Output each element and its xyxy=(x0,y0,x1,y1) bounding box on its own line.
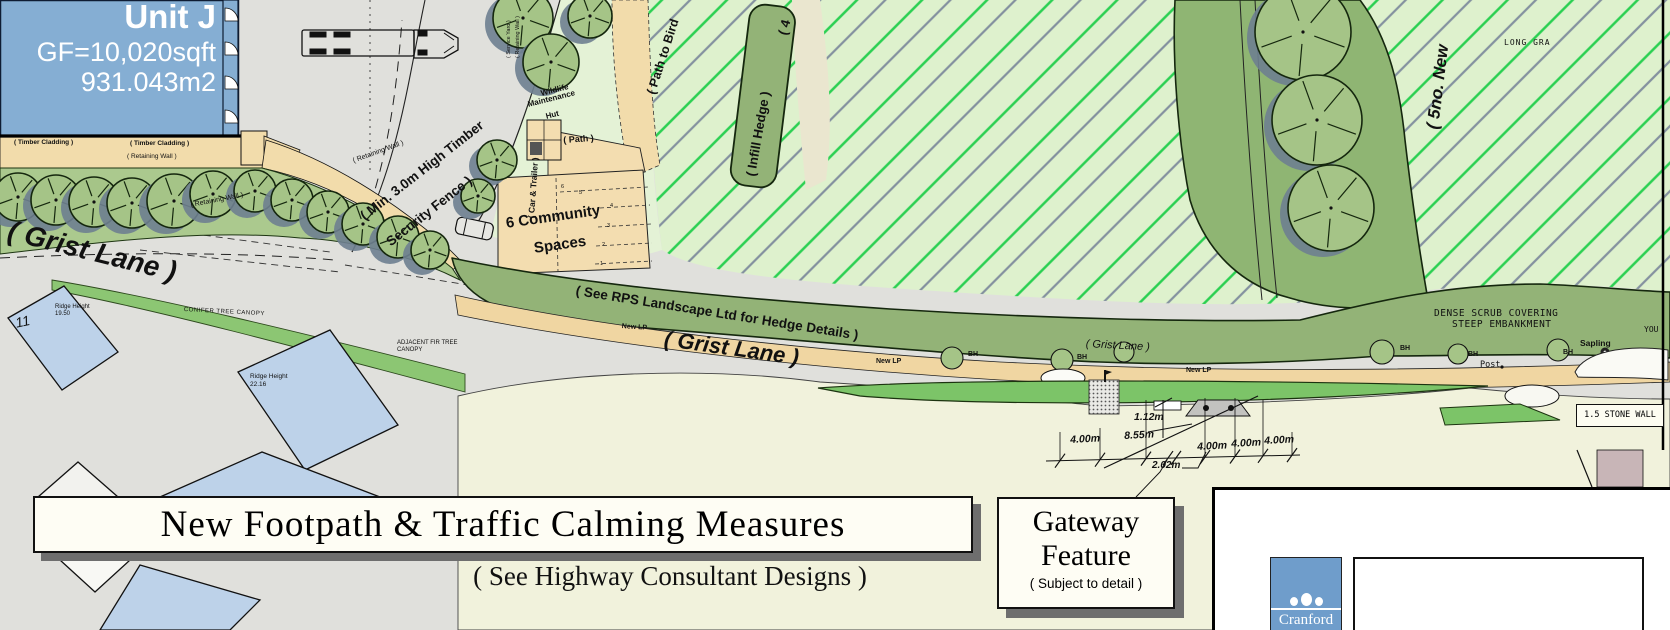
young-fragment-label: YOU xyxy=(1644,326,1658,334)
dimension-label: 4.00m xyxy=(1070,433,1100,446)
dimension-label: 8.55m xyxy=(1124,429,1154,442)
bh-marker: BH xyxy=(1563,349,1573,356)
adjacent-fir-label: ADJACENT FIR TREE xyxy=(397,340,457,346)
ridge-height-value: 22.16 xyxy=(250,382,266,389)
gateway-feature-area xyxy=(1089,380,1119,414)
sapling-label: Sapling xyxy=(1580,339,1611,348)
gateway-feature-title: Feature xyxy=(999,539,1173,573)
bay-number: 5 xyxy=(579,191,582,197)
drawing-info-box xyxy=(1353,557,1644,630)
gateway-feature-note: ( Subject to detail ) xyxy=(999,576,1173,591)
timber-cladding-label: ( Timber Cladding ) xyxy=(14,140,73,147)
title-box: New Footpath & Traffic Calming Measures xyxy=(33,496,973,553)
bay-number: 3 xyxy=(607,224,610,230)
bay-number: 6 xyxy=(561,185,564,191)
ridge-height-label: Ridge Height xyxy=(250,374,288,381)
timber-cladding-label: ( Timber Cladding ) xyxy=(130,141,189,148)
tree xyxy=(411,231,449,269)
bh-marker: BH xyxy=(1468,351,1478,358)
dense-scrub-label: STEEP EMBANKMENT xyxy=(1452,320,1552,330)
retaining-wall-label: ( Retaining Wall ) xyxy=(127,154,177,161)
speed-cushion xyxy=(1186,400,1250,416)
bh-marker: BH xyxy=(968,351,978,358)
bay-number: 2 xyxy=(602,243,605,249)
tree xyxy=(568,0,612,38)
adjacent-fir-label: CANOPY xyxy=(397,347,422,353)
plan-title: New Footpath & Traffic Calming Measures xyxy=(161,503,846,546)
gateway-feature-title: Gateway xyxy=(999,505,1173,539)
dimension-label: 4.00m xyxy=(1264,434,1294,447)
bh-marker: BH xyxy=(1400,345,1410,352)
cranford-dots-icon xyxy=(1271,590,1341,610)
service-yard-label: ( Service Yard ) xyxy=(507,20,513,58)
long-grass-label: LONG GRA xyxy=(1504,39,1551,47)
plot-number-label: 11 xyxy=(14,313,31,330)
cranford-logo: Cranford xyxy=(1270,557,1342,630)
tree xyxy=(1272,75,1362,165)
cranford-logo-text: Cranford xyxy=(1271,612,1341,629)
unit-j-name: Unit J xyxy=(6,0,216,35)
service-yard xyxy=(0,131,300,170)
new-lp-marker: New LP xyxy=(1186,367,1211,374)
dimension-label: 4.00m xyxy=(1231,437,1261,450)
ridge-height-label: Ridge Height xyxy=(55,304,90,310)
service-yard-label: ( Retaining Wall ) xyxy=(516,16,522,58)
tree xyxy=(1288,165,1374,251)
field-bush xyxy=(1505,385,1559,407)
dense-scrub-label: DENSE SCRUB COVERING xyxy=(1434,309,1558,319)
unit-j-m2: 931.043m2 xyxy=(6,68,216,96)
bh-marker: BH xyxy=(1077,354,1087,361)
unit-j-sqft: GF=10,020sqft xyxy=(6,38,216,66)
plan-subtitle: ( See Highway Consultant Designs ) xyxy=(382,562,958,590)
gateway-feature-box: Gateway Feature ( Subject to detail ) xyxy=(997,497,1175,609)
wildlife-hut xyxy=(527,120,561,160)
dimension-label: 1.12m xyxy=(1134,412,1164,423)
new-lp-marker: New LP xyxy=(876,358,901,365)
ridge-height-value: 19.50 xyxy=(55,311,70,317)
bay-number: 1 xyxy=(600,262,603,268)
tree xyxy=(523,34,579,90)
tree xyxy=(477,140,517,180)
stone-wall-label: 1.5 STONE WALL xyxy=(1576,404,1664,427)
stone-wall-band xyxy=(1597,450,1643,487)
site-plan: Unit J GF=10,020sqft 931.043m2 ( Timber … xyxy=(0,0,1670,630)
dimension-label: 2.02m xyxy=(1152,461,1180,472)
post-symbol xyxy=(1500,365,1503,368)
bay-number: 4 xyxy=(610,204,613,210)
dimension-label: 4.00m xyxy=(1197,440,1227,453)
post-label: Post xyxy=(1480,361,1500,370)
